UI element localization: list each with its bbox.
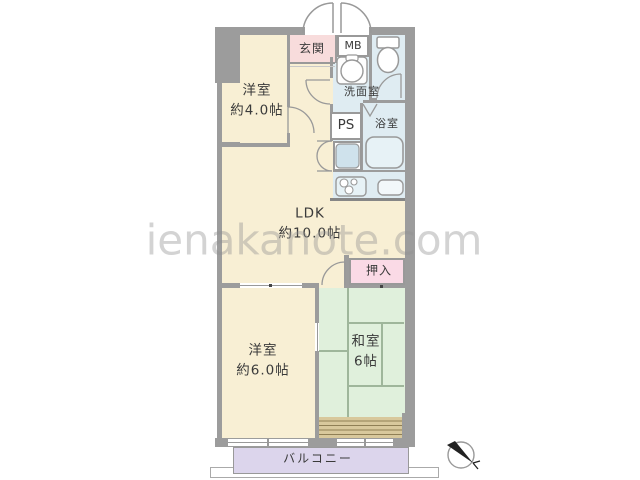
japanese-room-door-swing-icon (322, 262, 345, 285)
laundry-double-door-swing-icon (317, 141, 332, 171)
room-name: 洋室 (236, 341, 289, 361)
sink-icon (378, 180, 403, 195)
room-name: 洋室 (230, 81, 283, 101)
entrance-label: 玄関 (299, 40, 325, 57)
floor-plan: 玄関 MB 洗面室 洋室 約4.0帖 PS 浴室 LDK 約10.0帖 押入 洋… (0, 0, 640, 480)
toilet-door-swing-icon (377, 74, 401, 98)
meter-box-label: MB (344, 38, 361, 54)
western-room-4-door-swing-icon (288, 107, 314, 133)
balcony-label: バルコニー (283, 450, 353, 467)
room-size: 約6.0帖 (236, 361, 289, 381)
pipe-space-label: PS (338, 116, 355, 136)
washroom-door-swing-icon (306, 80, 330, 104)
bathtub-icon (366, 137, 403, 168)
room-size: 6帖 (352, 352, 381, 372)
room-size: 約4.0帖 (230, 101, 283, 121)
washing-machine-icon (336, 144, 359, 168)
closet-label: 押入 (366, 262, 392, 279)
toilet-icon (377, 37, 399, 73)
compass-icon (447, 441, 480, 469)
room-name: 和室 (352, 332, 381, 352)
bathroom-label: 浴室 (375, 116, 399, 132)
western-room-4-label: 洋室 約4.0帖 (230, 81, 283, 120)
wash-basin-icon (337, 55, 367, 84)
washroom-label: 洗面室 (344, 84, 380, 100)
japanese-room-label: 和室 6帖 (352, 332, 381, 371)
entrance-door-swing-icon (303, 3, 371, 33)
stove-icon (336, 177, 366, 196)
bath-folding-door-icon (363, 104, 377, 116)
watermark: ienakanote.com (146, 216, 483, 265)
western-room-6-label: 洋室 約6.0帖 (236, 341, 289, 380)
